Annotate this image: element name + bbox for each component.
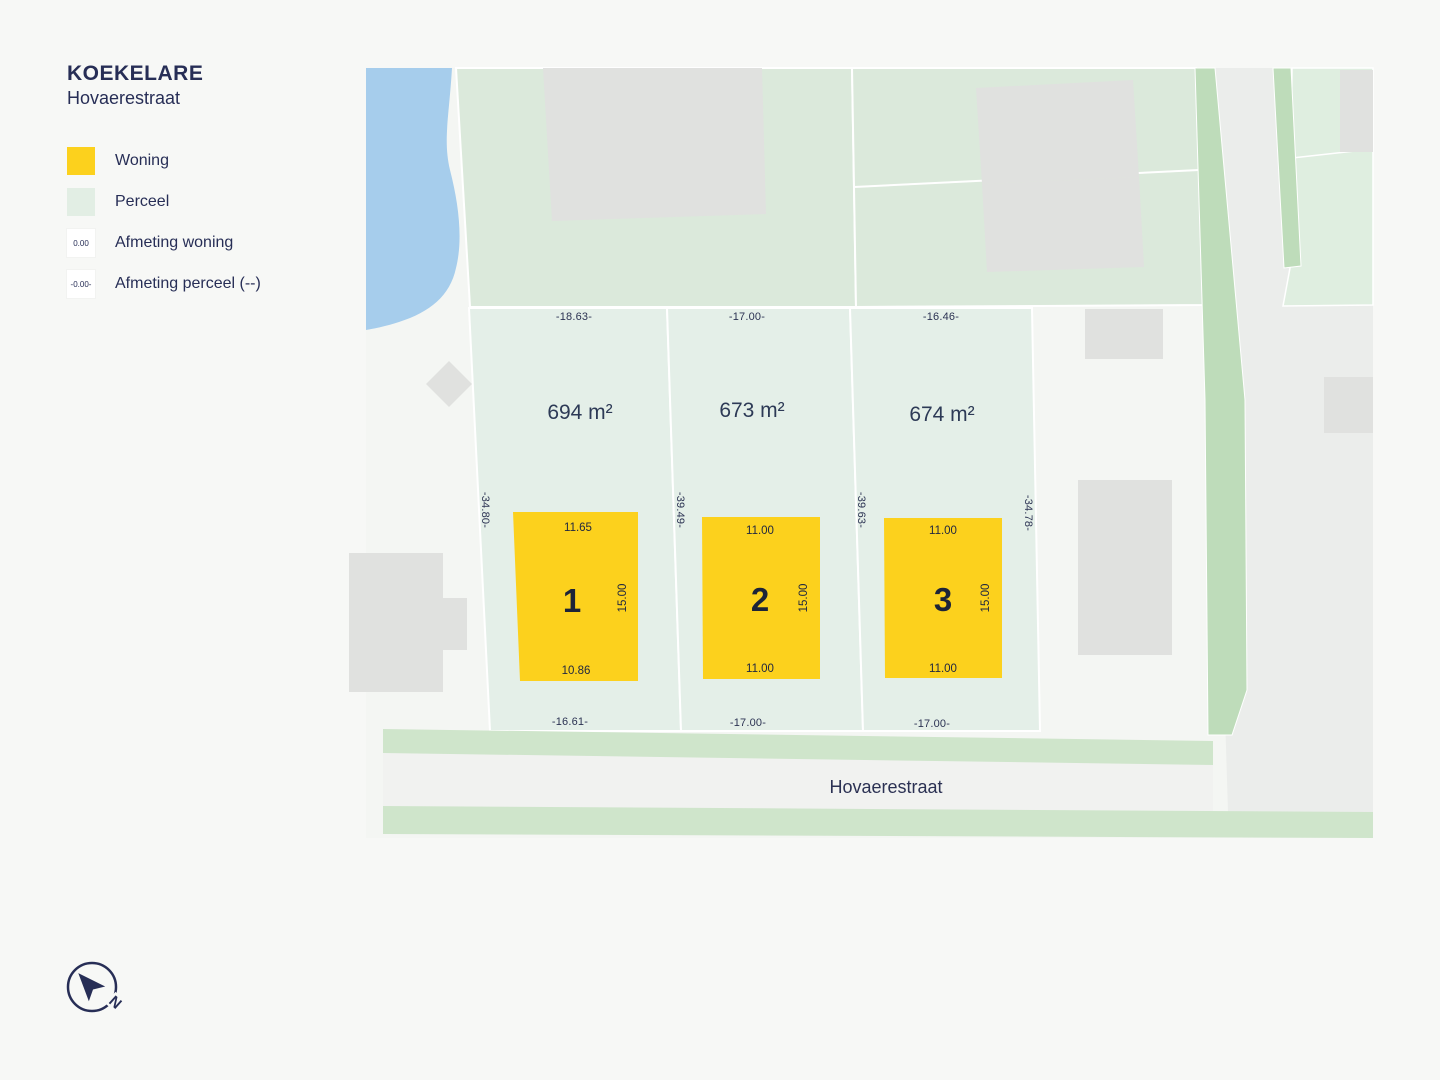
legend-item-perceel: Perceel [67,188,261,216]
building [1340,70,1373,152]
building [1324,377,1373,433]
house-1-width-top: 11.65 [564,522,592,534]
legend-label: Afmeting woning [115,234,233,252]
house-3[interactable]: 11.00 3 15.00 11.00 [884,518,1002,678]
legend-item-woning: Woning [67,147,261,175]
legend-item-afmeting-perceel: -0.00- Afmeting perceel (--) [67,270,261,298]
house-1-depth: 15.00 [617,584,629,613]
house-3-width-top: 11.00 [929,525,957,537]
house-1-number: 1 [563,582,581,619]
afmeting-perceel-sample: -0.00- [71,280,92,289]
lot-2-area: 673 m² [719,399,784,422]
house-1-width-bottom: 10.86 [562,665,591,677]
woning-swatch [67,147,95,175]
lot-3-dim-right: -34.78- [1022,495,1034,531]
house-2-width-top: 11.00 [746,525,774,537]
house-2[interactable]: 11.00 2 15.00 11.00 [702,517,820,679]
house-2-depth: 15.00 [798,584,810,613]
legend-item-afmeting-woning: 0.00 Afmeting woning [67,229,261,257]
lot-1-dim-bottom: -16.61- [552,716,588,728]
plan-header: KOEKELARE Hovaerestraat [67,62,203,109]
lot-2-dim-left: -39.49- [674,492,686,528]
building [982,177,1144,272]
lot-1-dim-top: -18.63- [556,311,592,323]
lot-2-dim-top: -17.00- [729,311,765,323]
lot-1-dim-left: -34.80- [479,492,491,528]
building [543,68,766,221]
afmeting-woning-sample: 0.00 [73,239,89,248]
lot-2-dim-bottom: -17.00- [730,717,766,729]
lot-1-area: 694 m² [547,401,612,424]
house-2-width-bottom: 11.00 [746,663,774,675]
site-plan-page: { "title": { "municipality": "KOEKELARE"… [0,0,1440,1080]
building [976,80,1139,184]
water-body [366,68,460,330]
legend-label: Afmeting perceel (--) [115,275,261,293]
lot-3-area: 674 m² [909,403,974,426]
house-2-number: 2 [751,581,769,618]
building [1078,480,1172,655]
afmeting-perceel-swatch: -0.00- [67,270,95,298]
north-compass: N [68,963,125,1013]
house-3-width-bottom: 11.00 [929,663,957,675]
legend-label: Woning [115,152,169,170]
lot-3-dim-left: -39.63- [855,492,867,528]
house-3-number: 3 [934,581,952,618]
page-title: KOEKELARE [67,62,203,85]
compass-north-label: N [105,993,124,1013]
building [1085,309,1163,359]
legend-label: Perceel [115,193,169,211]
house-1[interactable]: 11.65 1 15.00 10.86 [513,512,638,681]
lot-3-dim-bottom: -17.00- [914,718,950,730]
street-name-label: Hovaerestraat [829,777,942,797]
legend: Woning Perceel 0.00 Afmeting woning -0.0… [67,147,261,311]
perceel-swatch [67,188,95,216]
page-subtitle: Hovaerestraat [67,89,203,109]
house-3-depth: 15.00 [980,584,992,613]
afmeting-woning-swatch: 0.00 [67,229,95,257]
lot-3-dim-top: -16.46- [923,311,959,323]
